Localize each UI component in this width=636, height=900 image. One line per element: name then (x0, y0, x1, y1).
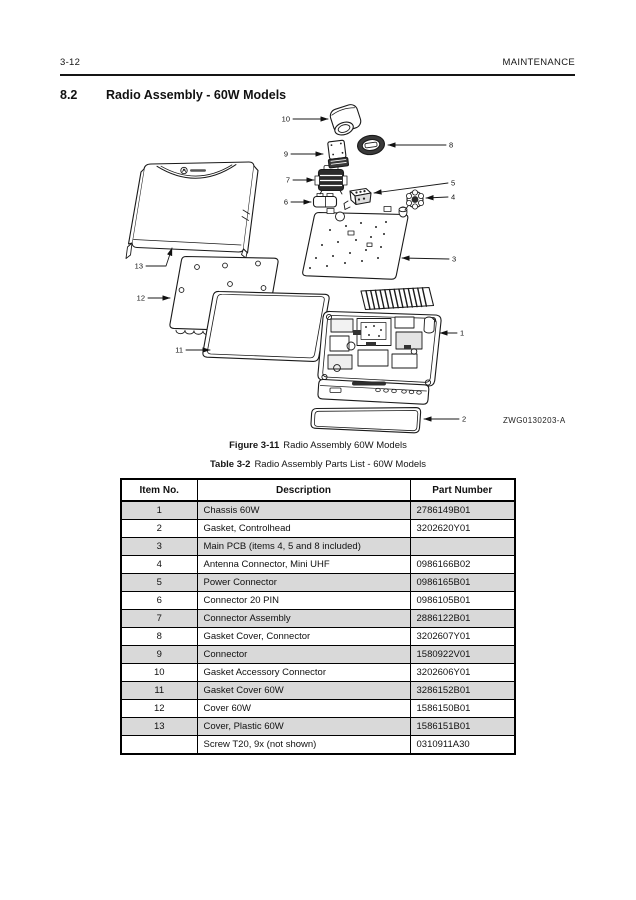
callout-12: 12 (137, 294, 170, 303)
figure-caption-text: Radio Assembly 60W Models (283, 440, 407, 451)
callout-label: 10 (282, 115, 290, 124)
table-row: 13Cover, Plastic 60W1586151B01 (121, 718, 515, 736)
table-row: 10Gasket Accessory Connector3202606Y01 (121, 664, 515, 682)
cell-item-no (121, 736, 197, 755)
part-8-connector-gasket (356, 134, 385, 157)
cell-part-number: 0986165B01 (410, 574, 515, 592)
cell-item-no: 9 (121, 646, 197, 664)
cell-description: Connector 20 PIN (197, 592, 410, 610)
callout-label: 13 (135, 262, 143, 271)
part-9-connector (326, 140, 349, 168)
callout-9: 9 (284, 150, 323, 159)
callout-label: 2 (462, 415, 466, 424)
cell-part-number (410, 538, 515, 556)
cell-part-number: 0310911A30 (410, 736, 515, 755)
part-3-main-pcb (303, 207, 408, 280)
table-row: 3Main PCB (items 4, 5 and 8 included) (121, 538, 515, 556)
part-13-plastic-cover (126, 162, 258, 259)
cell-item-no: 5 (121, 574, 197, 592)
cell-item-no: 8 (121, 628, 197, 646)
cell-description: Gasket Accessory Connector (197, 664, 410, 682)
callout-13: 13 (135, 248, 172, 271)
table-caption-label: Table 3-2 (210, 459, 250, 470)
callout-7: 7 (286, 176, 314, 185)
callout-label: 8 (449, 141, 453, 150)
table-row: 8Gasket Cover, Connector3202607Y01 (121, 628, 515, 646)
cell-description: Antenna Connector, Mini UHF (197, 556, 410, 574)
parts-table: Item No. Description Part Number 1Chassi… (120, 478, 516, 755)
cell-part-number: 0986166B02 (410, 556, 515, 574)
callout-label: 9 (284, 150, 288, 159)
cell-description: Chassis 60W (197, 501, 410, 520)
callout-6: 6 (284, 198, 311, 207)
cell-part-number: 2786149B01 (410, 501, 515, 520)
callout-label: 4 (451, 193, 455, 202)
part-7-connector-assembly (315, 166, 347, 195)
header-description: Description (197, 479, 410, 501)
callout-label: 12 (137, 294, 145, 303)
table-header-row: Item No. Description Part Number (121, 479, 515, 501)
part-11-gasket-cover (203, 291, 329, 361)
callout-label: 7 (286, 176, 290, 185)
callout-label: 3 (452, 255, 456, 264)
callout-10: 10 (282, 115, 328, 124)
callout-3: 3 (402, 255, 456, 264)
table-row: 6Connector 20 PIN0986105B01 (121, 592, 515, 610)
callout-label: 6 (284, 198, 288, 207)
callout-label: 5 (451, 179, 455, 188)
figure-caption-label: Figure 3-11 (229, 440, 279, 451)
part-6-connector-20pin (314, 194, 337, 208)
cell-item-no: 12 (121, 700, 197, 718)
cell-item-no: 7 (121, 610, 197, 628)
cell-part-number: 3202606Y01 (410, 664, 515, 682)
callout-label: 1 (460, 329, 464, 338)
part-2-controlhead-gasket (311, 408, 421, 433)
cell-description: Cover, Plastic 60W (197, 718, 410, 736)
part-4-antenna-connector (405, 190, 424, 210)
heatsink-fins (361, 288, 434, 310)
table-row: 12Cover 60W1586150B01 (121, 700, 515, 718)
cell-description: Main PCB (items 4, 5 and 8 included) (197, 538, 410, 556)
cell-part-number: 0986105B01 (410, 592, 515, 610)
chassis-antenna-boss (424, 317, 435, 333)
table-row: 5Power Connector0986165B01 (121, 574, 515, 592)
table-row: 7Connector Assembly2886122B01 (121, 610, 515, 628)
figure-caption: Figure 3-11Radio Assembly 60W Models (0, 440, 636, 451)
manual-page: 3-12 MAINTENANCE 8.2 Radio Assembly - 60… (0, 0, 636, 900)
cell-item-no: 2 (121, 520, 197, 538)
diagram-reference-number: ZWG0130203-A (503, 416, 566, 425)
cell-item-no: 11 (121, 682, 197, 700)
cell-part-number: 2886122B01 (410, 610, 515, 628)
table-row: 2Gasket, Controlhead3202620Y01 (121, 520, 515, 538)
part-1-chassis (318, 288, 441, 405)
table-row: 1Chassis 60W2786149B01 (121, 501, 515, 520)
cell-part-number: 1586150B01 (410, 700, 515, 718)
table-row: 4Antenna Connector, Mini UHF0986166B02 (121, 556, 515, 574)
cell-item-no: 10 (121, 664, 197, 682)
cell-part-number: 3202607Y01 (410, 628, 515, 646)
cell-item-no: 13 (121, 718, 197, 736)
cell-description: Cover 60W (197, 700, 410, 718)
table-row: 11Gasket Cover 60W3286152B01 (121, 682, 515, 700)
callout-4: 4 (426, 193, 455, 202)
table-row: 9Connector1580922V01 (121, 646, 515, 664)
cell-description: Gasket, Controlhead (197, 520, 410, 538)
cell-item-no: 1 (121, 501, 197, 520)
header-part-number: Part Number (410, 479, 515, 501)
table-caption: Table 3-2Radio Assembly Parts List - 60W… (0, 459, 636, 470)
cell-part-number: 1580922V01 (410, 646, 515, 664)
cell-description: Screw T20, 9x (not shown) (197, 736, 410, 755)
cell-item-no: 6 (121, 592, 197, 610)
cell-part-number: 3202620Y01 (410, 520, 515, 538)
header-item-no: Item No. (121, 479, 197, 501)
cell-description: Gasket Cover, Connector (197, 628, 410, 646)
table-caption-text: Radio Assembly Parts List - 60W Models (254, 459, 426, 470)
cell-item-no: 3 (121, 538, 197, 556)
callout-1: 1 (440, 329, 464, 338)
cell-part-number: 3286152B01 (410, 682, 515, 700)
cell-description: Connector (197, 646, 410, 664)
callout-8: 8 (388, 141, 453, 150)
part-10-accessory-gasket (329, 103, 364, 137)
part-5-power-connector (344, 189, 371, 210)
callout-label: 11 (175, 346, 183, 355)
cell-description: Power Connector (197, 574, 410, 592)
callout-2: 2 (424, 415, 466, 424)
cell-item-no: 4 (121, 556, 197, 574)
cell-description: Gasket Cover 60W (197, 682, 410, 700)
cell-part-number: 1586151B01 (410, 718, 515, 736)
table-row: Screw T20, 9x (not shown)0310911A30 (121, 736, 515, 755)
cell-description: Connector Assembly (197, 610, 410, 628)
